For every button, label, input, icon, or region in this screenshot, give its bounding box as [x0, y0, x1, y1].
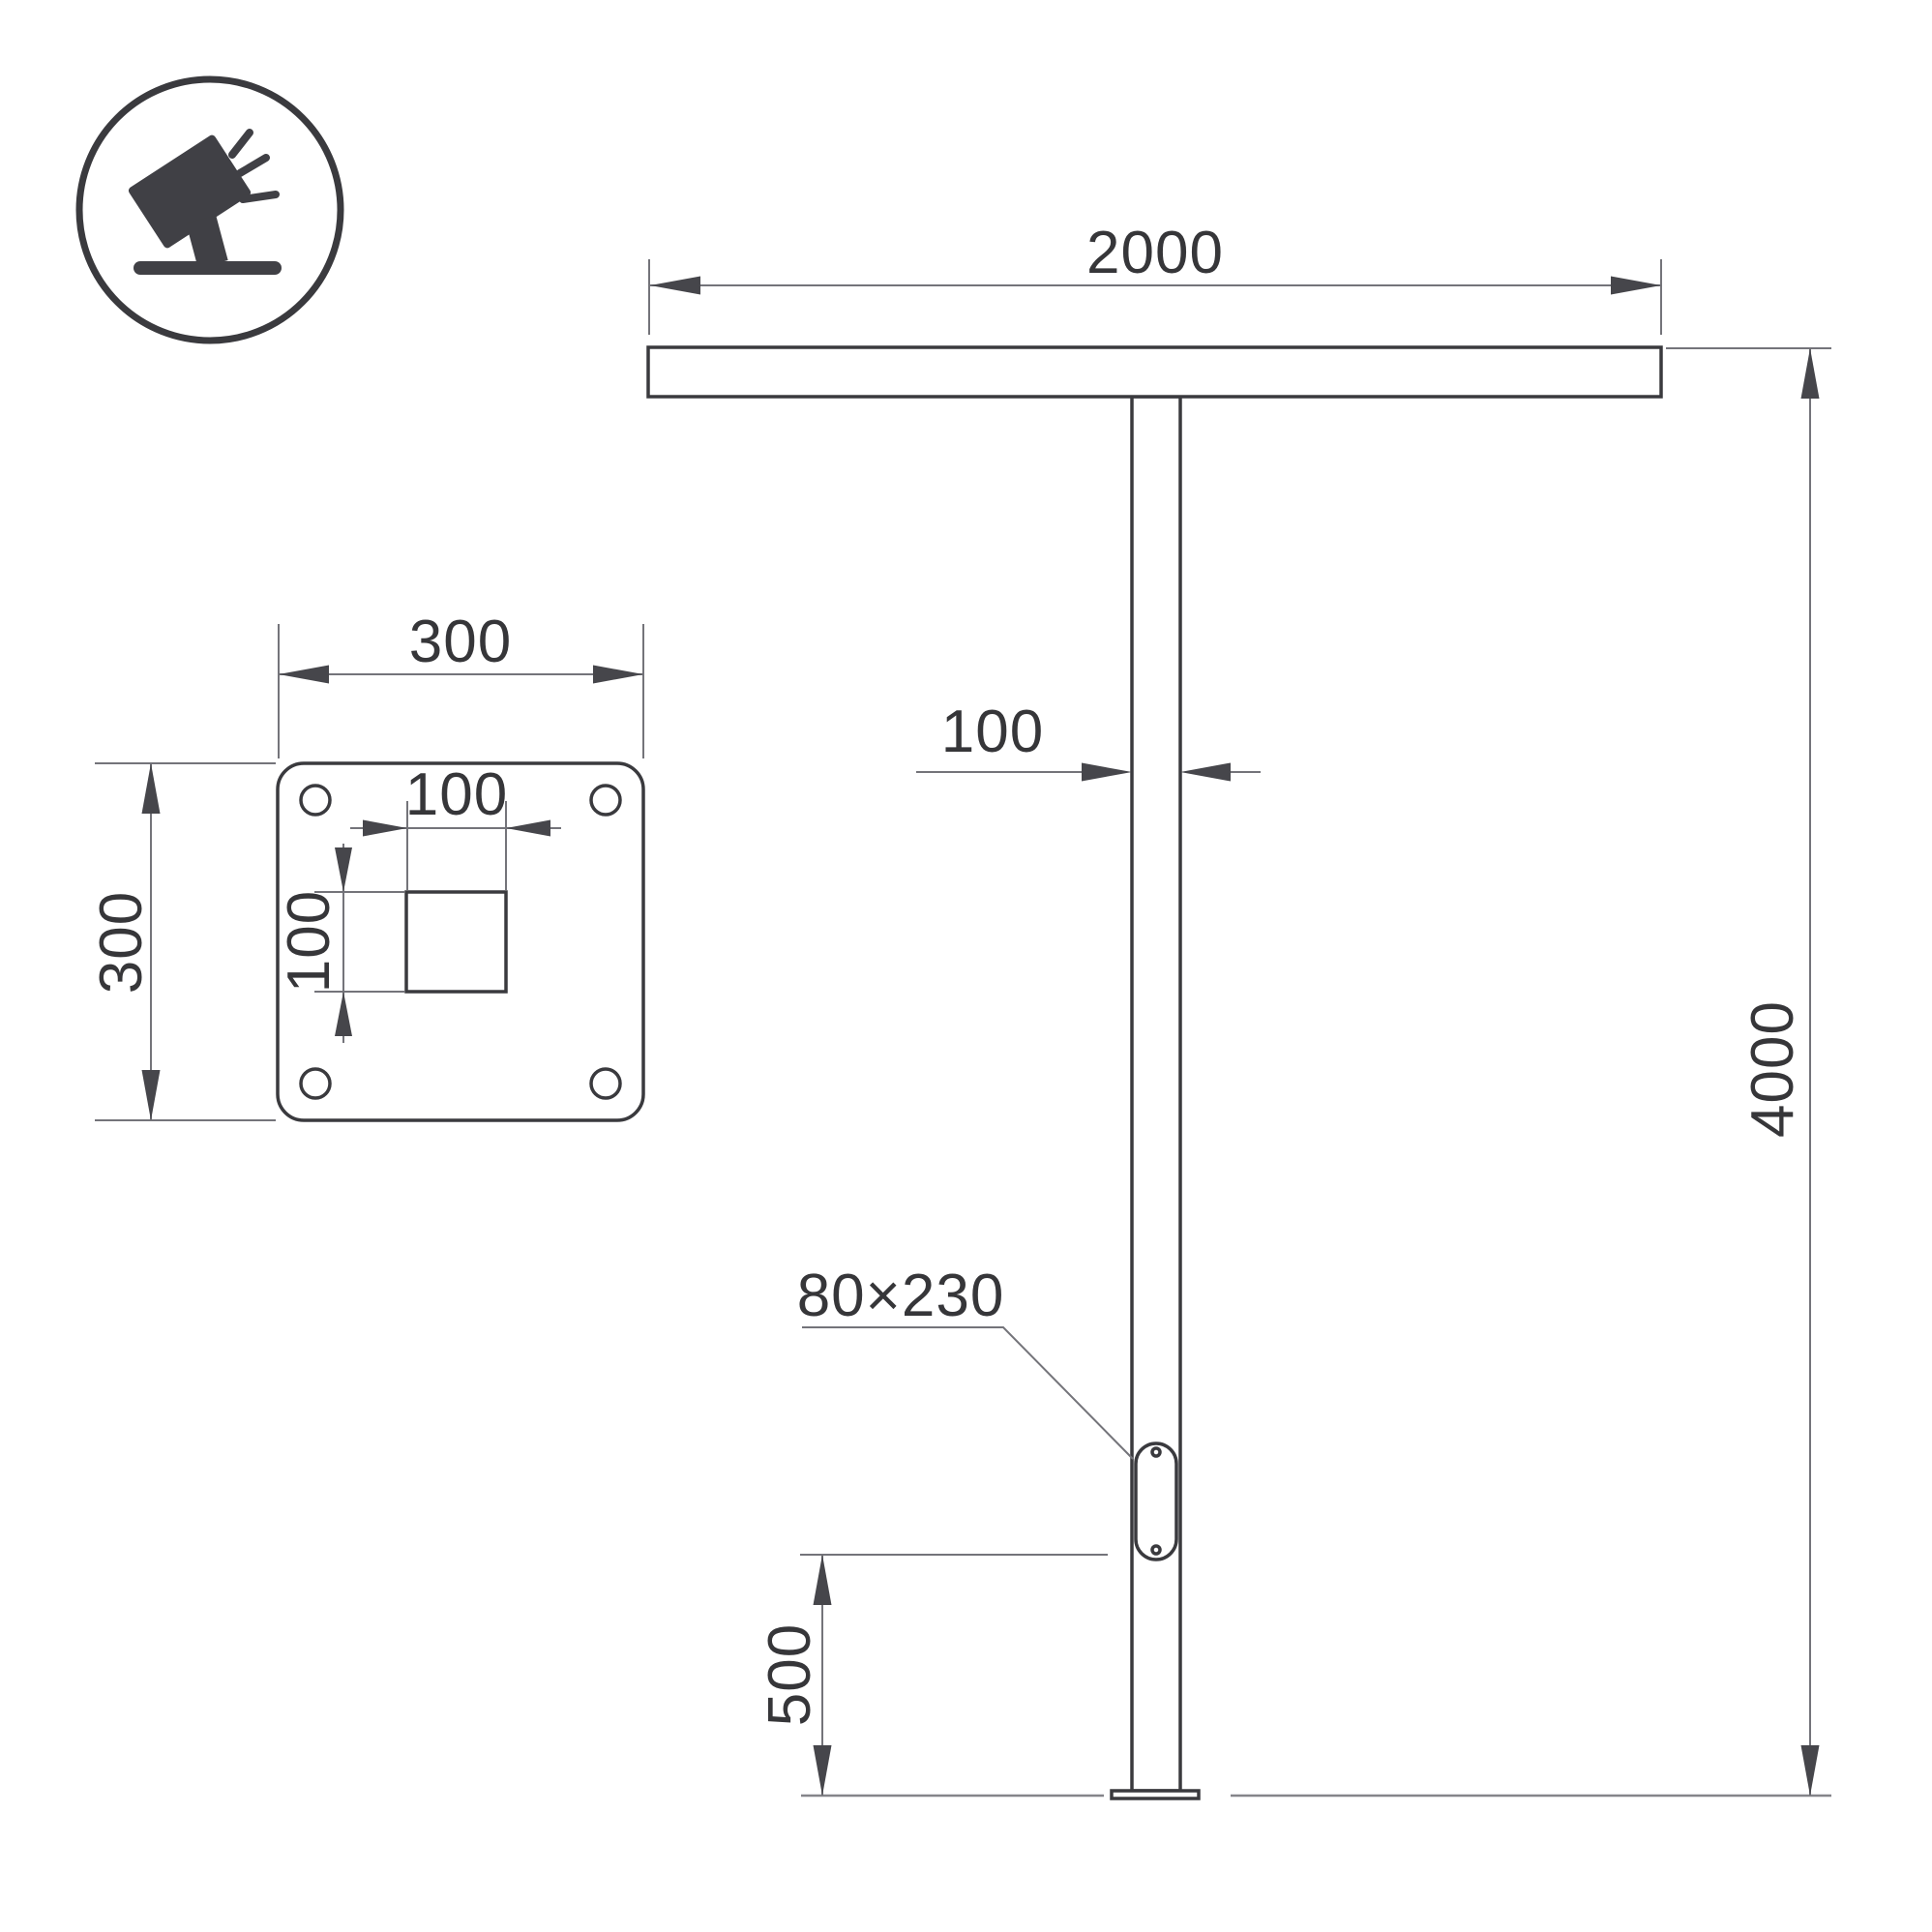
hole-height-label: 100	[276, 890, 342, 993]
dim-plate-width: 300	[279, 609, 643, 758]
dim-plate-height: 300	[88, 763, 276, 1120]
access-hatch	[1136, 1443, 1176, 1560]
base-flange	[1112, 1791, 1199, 1798]
dim-pole-width: 100	[916, 698, 1261, 782]
arm-span-label: 2000	[1086, 220, 1224, 286]
technical-drawing: 300 300 100 100	[0, 0, 1932, 1932]
hole-width-label: 100	[405, 761, 508, 828]
dim-arm-span: 2000	[649, 220, 1661, 335]
cross-arm	[648, 347, 1661, 397]
light-ray	[232, 133, 250, 155]
callout-hatch-size: 80×230	[797, 1263, 1133, 1459]
dim-pole-height: 4000	[1666, 348, 1831, 1796]
pole-front-view: 2000 100 4000 80×230	[648, 220, 1831, 1798]
drawing-canvas: 300 300 100 100	[0, 0, 1932, 1932]
pole-width-label: 100	[941, 698, 1044, 765]
pole-shaft	[1132, 397, 1180, 1791]
pole-height-label: 4000	[1739, 1000, 1806, 1138]
plate-height-label: 300	[88, 891, 155, 994]
floodlight-neck	[186, 216, 227, 269]
light-ray	[240, 158, 266, 173]
light-ray	[243, 194, 276, 199]
hatch-offset-label: 500	[757, 1623, 823, 1726]
plate-width-label: 300	[409, 609, 512, 675]
floodlight-base-bar	[134, 261, 282, 275]
hatch-size-label: 80×230	[797, 1263, 1005, 1329]
dim-hatch-offset: 500	[757, 1555, 1108, 1796]
leader-line	[802, 1327, 1133, 1459]
floodlight-icon	[79, 79, 341, 341]
base-plate-top-view: 300 300 100 100	[88, 609, 643, 1120]
